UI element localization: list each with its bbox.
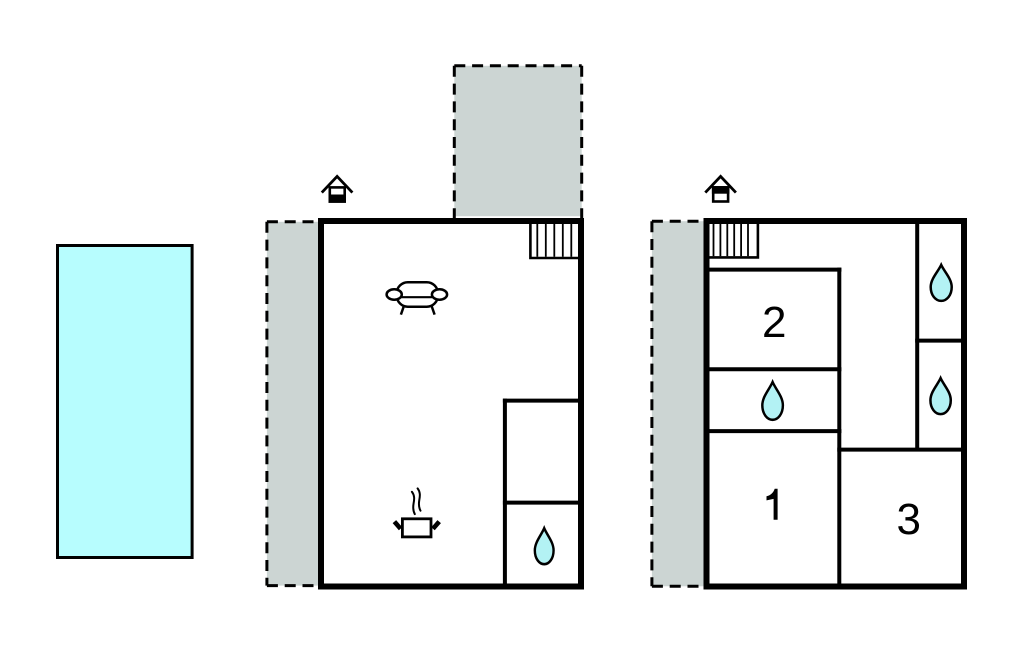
svg-text:2: 2	[762, 298, 786, 347]
svg-text:3: 3	[896, 495, 920, 544]
